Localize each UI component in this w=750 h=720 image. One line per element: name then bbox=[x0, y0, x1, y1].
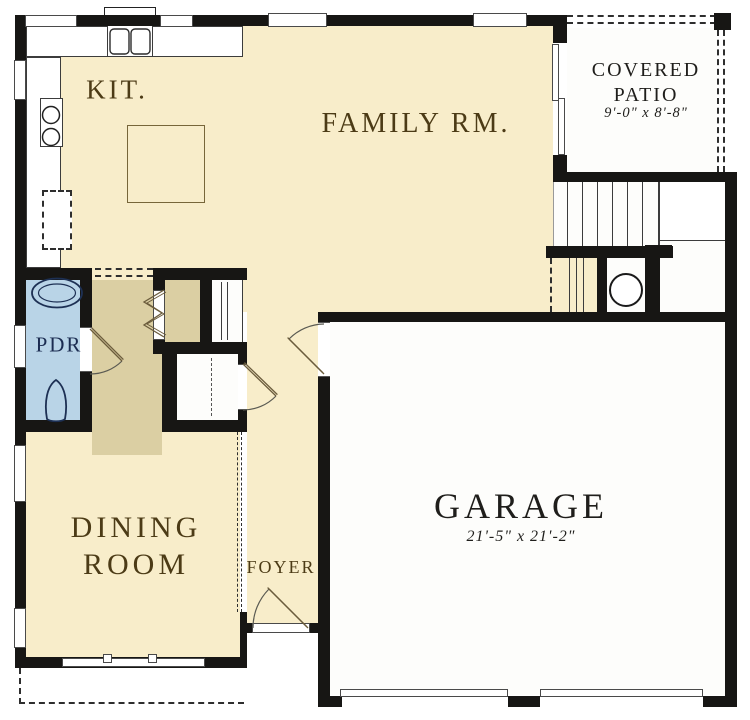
wall bbox=[238, 268, 247, 276]
patio-label-line1: COVERED bbox=[592, 60, 700, 80]
wall bbox=[318, 312, 737, 322]
wall bbox=[162, 420, 247, 432]
patio-dimensions: 9'-0" x 8'-8" bbox=[604, 106, 688, 121]
garage-door bbox=[540, 689, 703, 697]
wall bbox=[553, 172, 737, 182]
wall bbox=[80, 372, 92, 420]
wall bbox=[725, 172, 737, 707]
pantry-floor bbox=[553, 258, 597, 312]
floor-plan: KIT. FAMILY RM. COVERED PATIO 9'-0" x 8'… bbox=[0, 0, 750, 720]
garage-label: GARAGE bbox=[434, 488, 608, 524]
closet-a-floor bbox=[165, 280, 200, 342]
wall bbox=[318, 696, 342, 707]
closet-c-floor bbox=[177, 354, 238, 420]
sliding-glass-door bbox=[552, 44, 559, 101]
wall bbox=[153, 342, 247, 354]
window bbox=[62, 658, 205, 667]
dining-room-label-line2: ROOM bbox=[83, 550, 189, 580]
stair-open-edge-line bbox=[553, 182, 554, 248]
window bbox=[14, 60, 26, 100]
wall bbox=[553, 155, 567, 182]
garage-dimensions: 21'-5" x 21'-2" bbox=[466, 529, 575, 545]
wall bbox=[15, 420, 92, 432]
powder-room-label: PDR bbox=[36, 335, 83, 356]
bifold-closet-opening bbox=[153, 290, 165, 340]
kitchen-label: KIT. bbox=[86, 77, 148, 104]
staircase-area bbox=[553, 182, 660, 248]
garage-entry-opening bbox=[318, 322, 330, 377]
stair-landing-line bbox=[660, 240, 725, 241]
wall bbox=[153, 268, 165, 290]
dining-room-label-line1: DINING bbox=[71, 513, 202, 543]
window bbox=[14, 445, 26, 502]
stair-tread-line bbox=[567, 182, 568, 248]
patio-post bbox=[714, 13, 731, 30]
closet-c-door-opening bbox=[238, 364, 247, 410]
garage-door bbox=[340, 689, 508, 697]
wall bbox=[240, 612, 247, 668]
patio-label-line2: PATIO bbox=[614, 85, 679, 105]
hallway-floor bbox=[92, 280, 162, 455]
pantry-shelf-line bbox=[583, 258, 584, 312]
window bbox=[25, 15, 77, 27]
patio-edge-top-dashed bbox=[567, 15, 716, 24]
window bbox=[268, 13, 327, 27]
foyer-label: FOYER bbox=[246, 558, 315, 576]
wall bbox=[80, 268, 92, 327]
kitchen-sink-cabinet bbox=[107, 25, 153, 57]
wall bbox=[238, 410, 247, 432]
front-porch-outline-dashed bbox=[19, 668, 244, 704]
patio-edge-right-dashed bbox=[717, 30, 725, 172]
window bbox=[160, 15, 193, 27]
kitchen-hall-opening-dashed bbox=[95, 268, 153, 277]
window bbox=[14, 325, 26, 368]
closet-back-line bbox=[242, 276, 243, 342]
sliding-glass-door bbox=[558, 98, 565, 155]
water-heater-closet-floor bbox=[607, 257, 645, 318]
wall bbox=[645, 245, 672, 257]
wall bbox=[508, 696, 540, 707]
closet-rod-line bbox=[221, 282, 222, 340]
cooktop-icon bbox=[40, 98, 63, 147]
pantry-opening-dashed bbox=[550, 258, 552, 312]
pantry-shelf-line bbox=[569, 258, 570, 312]
stair-tread-line bbox=[597, 182, 598, 248]
front-door-opening bbox=[252, 623, 310, 633]
closet-c-dashed-line bbox=[211, 358, 212, 416]
pantry-shelf-line bbox=[576, 258, 577, 312]
dining-foyer-opening-dashed bbox=[237, 432, 242, 612]
wall bbox=[553, 15, 567, 43]
stair-tread-line bbox=[627, 182, 628, 248]
window-mullion bbox=[103, 654, 112, 663]
kitchen-island bbox=[127, 125, 205, 203]
stair-stringer-line bbox=[658, 182, 660, 248]
stair-tread-line bbox=[612, 182, 613, 248]
dining-room-floor bbox=[26, 432, 240, 657]
window-mullion bbox=[148, 654, 157, 663]
stair-tread-line bbox=[642, 182, 643, 248]
window bbox=[14, 608, 26, 648]
stair-tread-line bbox=[582, 182, 583, 248]
closet-rod-line bbox=[227, 282, 228, 340]
window bbox=[473, 13, 527, 27]
refrigerator-icon bbox=[42, 190, 72, 250]
wall bbox=[597, 257, 607, 318]
family-room-label: FAMILY RM. bbox=[322, 110, 511, 138]
